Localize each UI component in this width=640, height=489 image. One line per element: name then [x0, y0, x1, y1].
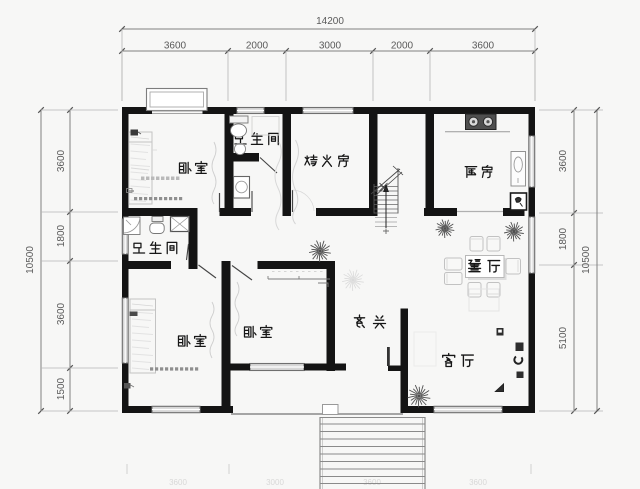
svg-text:1500: 1500: [56, 377, 67, 400]
svg-text:3600: 3600: [558, 149, 569, 172]
svg-text:1800: 1800: [56, 224, 67, 247]
svg-text:2000: 2000: [391, 41, 414, 52]
svg-text:10500: 10500: [581, 246, 592, 274]
svg-text:3600: 3600: [56, 302, 67, 325]
svg-text:1800: 1800: [558, 227, 569, 250]
svg-text:3600: 3600: [56, 149, 67, 172]
svg-text:5100: 5100: [558, 326, 569, 349]
svg-text:3600: 3600: [363, 478, 381, 487]
svg-text:10500: 10500: [25, 246, 36, 274]
svg-text:3600: 3600: [169, 478, 187, 487]
svg-text:3600: 3600: [472, 41, 495, 52]
svg-text:14200: 14200: [316, 16, 344, 27]
svg-text:3000: 3000: [319, 41, 342, 52]
svg-text:3600: 3600: [469, 478, 487, 487]
svg-text:3000: 3000: [266, 478, 284, 487]
svg-text:3600: 3600: [164, 41, 187, 52]
svg-text:2000: 2000: [246, 41, 269, 52]
